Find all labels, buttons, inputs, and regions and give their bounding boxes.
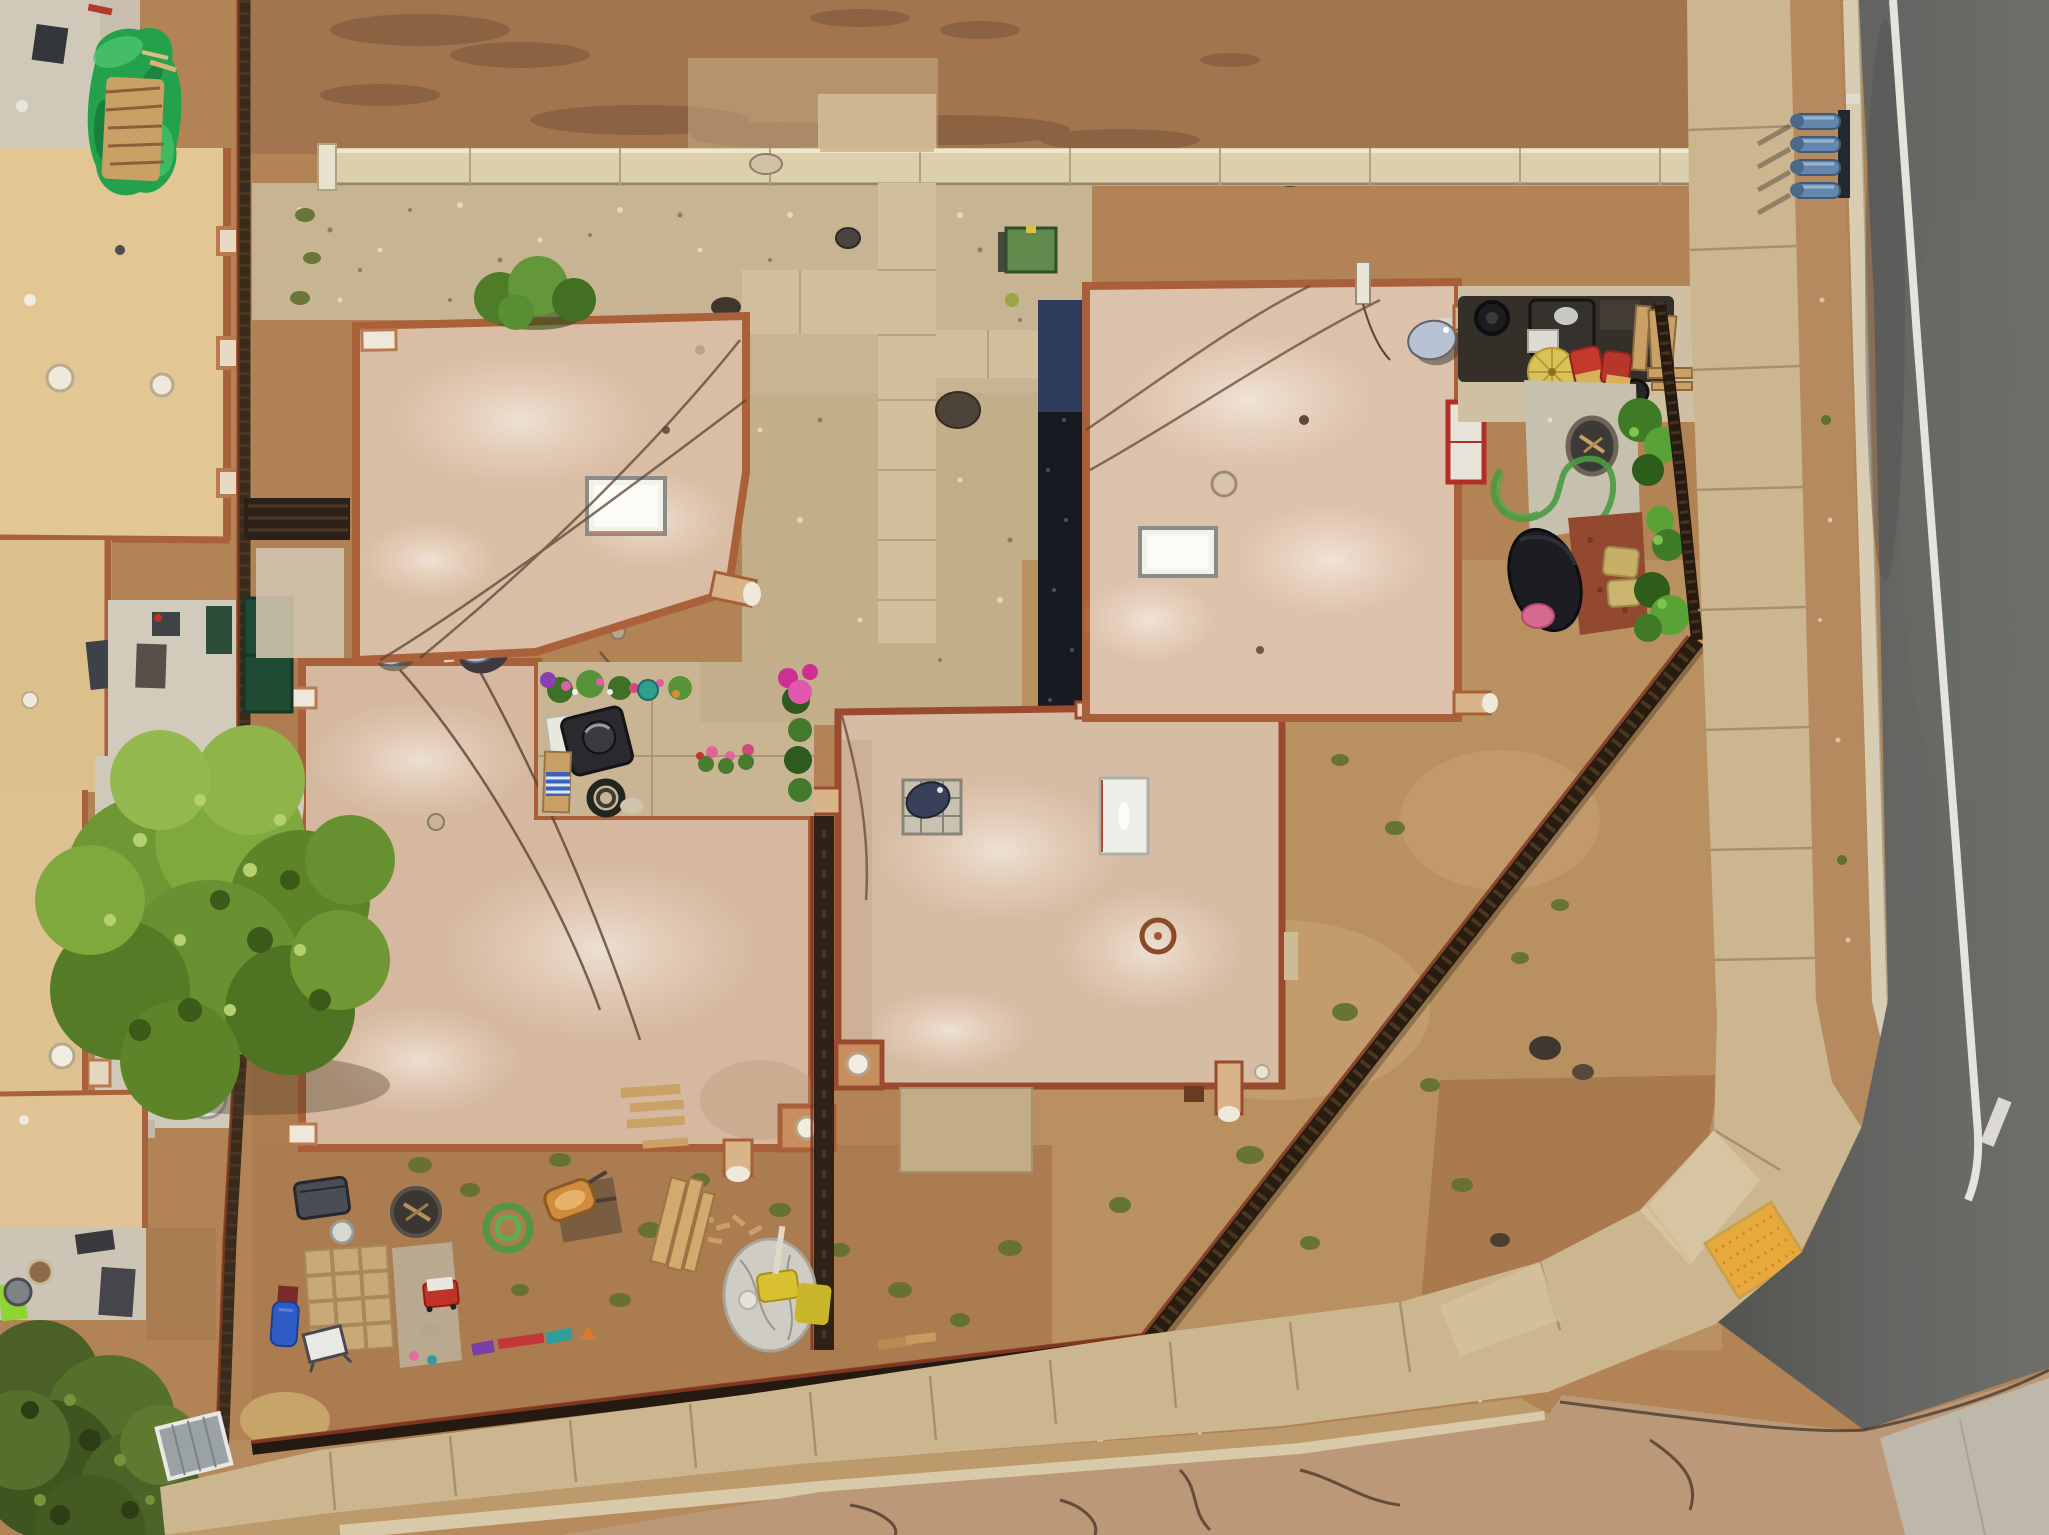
aerial-scene — [0, 0, 2049, 1535]
neighbor-roof-4 — [0, 1092, 148, 1232]
concrete-slab — [900, 1088, 1032, 1172]
house-center — [798, 702, 1282, 1122]
trash-bin — [294, 1177, 351, 1220]
tarp-firewood — [88, 28, 182, 195]
wall-end-post — [318, 144, 336, 190]
teal-pot — [638, 680, 658, 700]
dome-vent — [847, 1053, 869, 1075]
propane-tank — [331, 1221, 353, 1243]
skylight — [587, 478, 665, 534]
tennis-ball — [1005, 293, 1019, 307]
dark-strip — [1038, 300, 1086, 746]
yellow-toy — [756, 1269, 800, 1302]
blue-striped-pad — [546, 772, 570, 796]
patio-item — [32, 24, 69, 64]
skylight — [1100, 778, 1148, 854]
skylight — [1140, 528, 1216, 576]
yellow-pad — [794, 1282, 832, 1325]
aerial-photo — [0, 0, 2049, 1535]
neighbor-roof-1 — [0, 148, 230, 540]
north-wall — [318, 144, 1694, 190]
satellite-dish-platform — [902, 777, 961, 834]
courtyard — [538, 662, 818, 816]
utility-box — [1006, 228, 1056, 272]
house-top-right — [1080, 262, 1500, 718]
white-post — [1356, 262, 1370, 304]
